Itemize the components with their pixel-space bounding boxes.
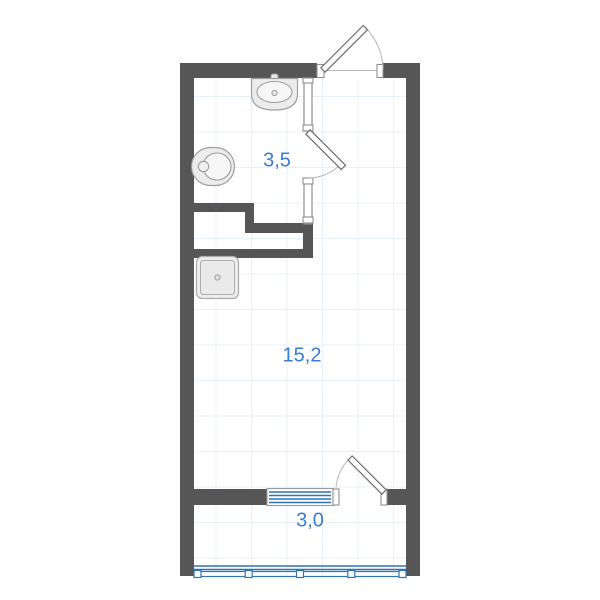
- floor-plan: 3,5 15,2 3,0: [0, 0, 600, 600]
- toilet-flush: [198, 161, 208, 171]
- balcony-window-symbol: [267, 489, 333, 506]
- bathroom-partition: [303, 78, 313, 224]
- partition-cap: [303, 125, 313, 131]
- wall-top-right: [383, 63, 420, 78]
- balcony-door-leaf: [348, 456, 386, 494]
- bathroom-door-leaf: [306, 130, 346, 170]
- entry-door-leaf: [321, 25, 368, 72]
- entry-door-symbol: [317, 25, 383, 77]
- washing-machine-knob: [215, 275, 220, 280]
- washing-machine-symbol: [197, 257, 239, 299]
- railing-post: [297, 571, 304, 578]
- wall-balcony-right: [387, 489, 406, 505]
- partition-cap: [303, 178, 313, 184]
- partition-cap: [303, 78, 313, 83]
- railing-post: [348, 571, 355, 578]
- balcony-door-symbol: [333, 456, 387, 505]
- wall-top-left: [180, 63, 317, 78]
- room-label-balcony: 3,0: [296, 510, 324, 533]
- room-label-bathroom: 3,5: [263, 150, 291, 173]
- railing-post: [194, 571, 201, 578]
- balcony-glazing-symbol: [194, 566, 406, 578]
- wall-niche-mid: [245, 223, 313, 233]
- sink-drain: [272, 90, 277, 95]
- toilet-symbol: [192, 148, 235, 186]
- balcony-door-swing-arc: [336, 458, 350, 488]
- balcony-jamb-left: [333, 489, 339, 505]
- partition-upper: [304, 78, 312, 131]
- railing-post: [399, 571, 406, 578]
- wall-left: [180, 63, 194, 576]
- entry-door-swing-arc: [365, 28, 383, 70]
- partition-cap: [303, 217, 313, 223]
- room-label-living-room: 15,2: [283, 345, 322, 368]
- wall-bathroom-bottom: [180, 203, 254, 212]
- wall-right: [406, 63, 420, 576]
- railing-post: [245, 571, 252, 578]
- entry-jamb-right: [377, 65, 383, 78]
- bathroom-door-symbol: [306, 130, 346, 178]
- bathroom-door-swing-arc: [308, 165, 341, 179]
- sink-symbol: [252, 74, 298, 110]
- wall-balcony-left: [194, 489, 267, 505]
